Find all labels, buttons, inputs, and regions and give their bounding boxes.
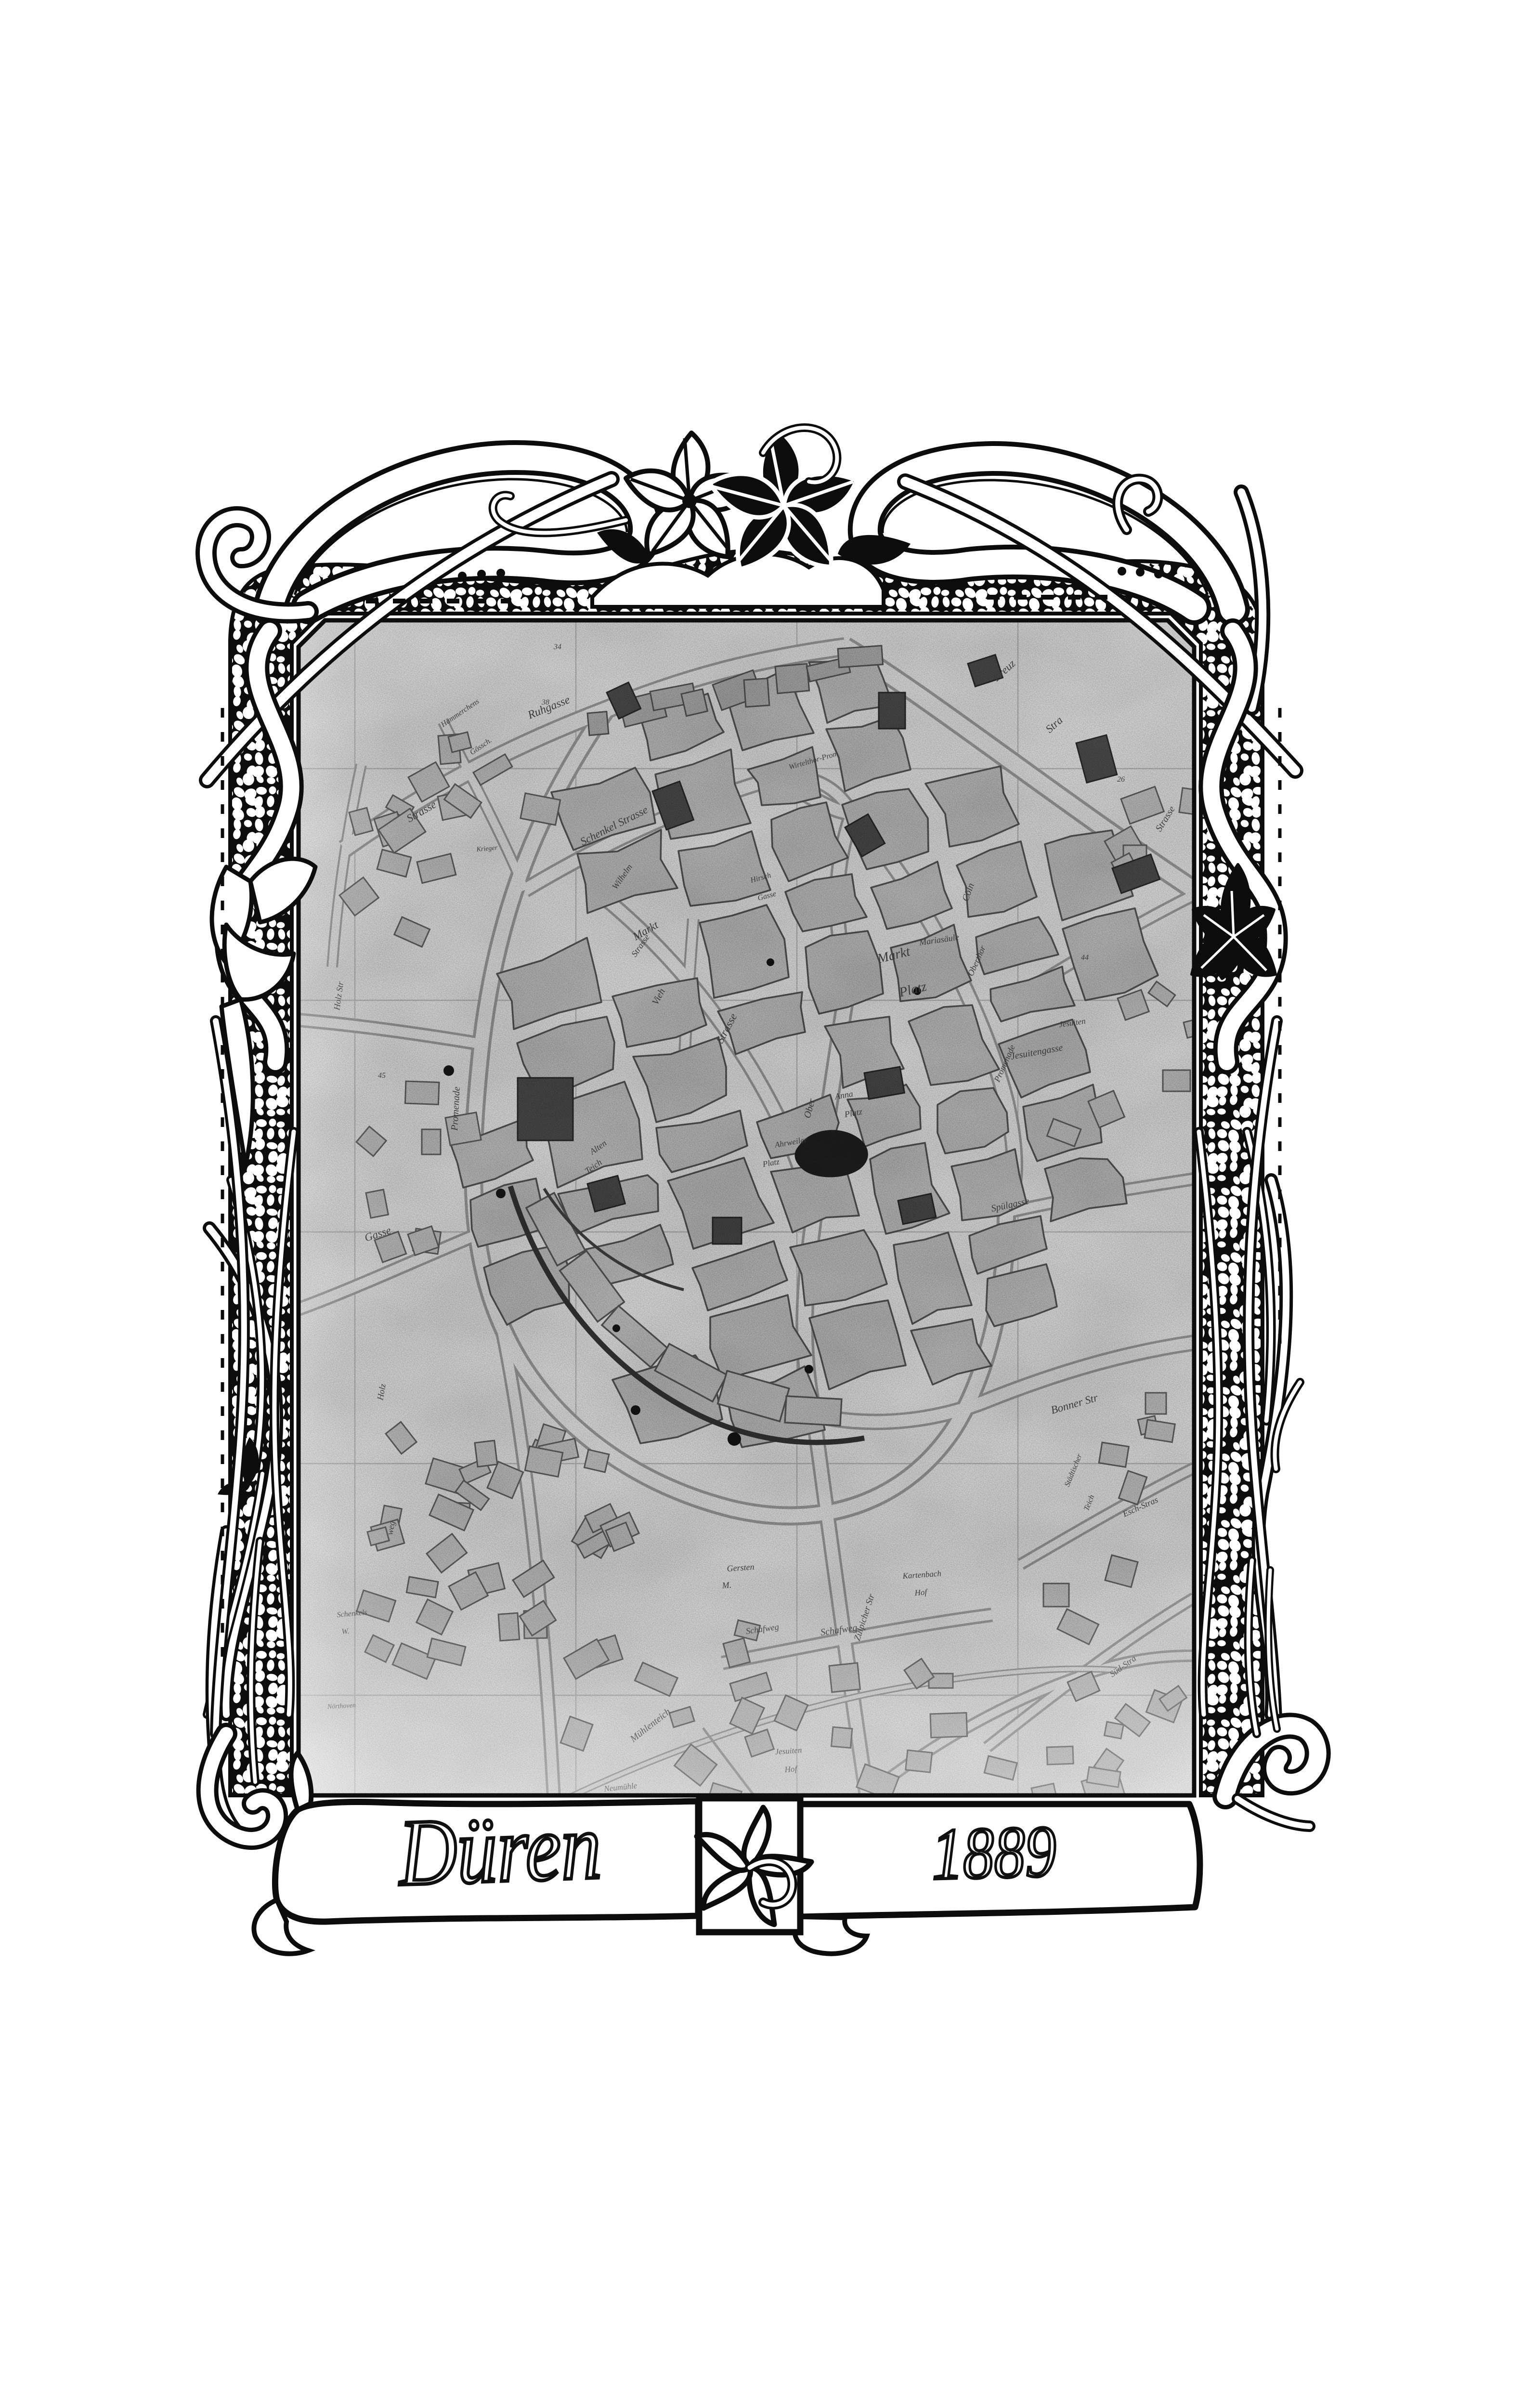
svg-text:Düren: Düren: [396, 1794, 603, 1905]
svg-text:1889: 1889: [931, 1810, 1057, 1895]
